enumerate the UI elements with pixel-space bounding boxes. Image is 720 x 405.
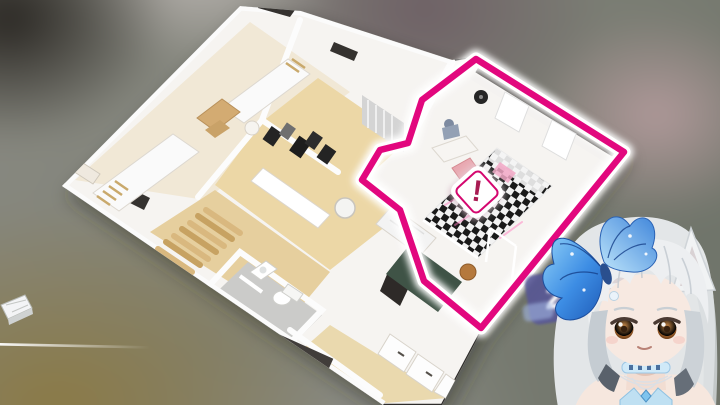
video-frame: 2 ! — [0, 0, 720, 405]
robot-vacuum — [335, 198, 355, 218]
light-streak — [0, 343, 150, 349]
pearl — [610, 292, 619, 301]
mini-floorplan-icon — [1, 295, 33, 325]
vtuber-avatar — [528, 162, 720, 405]
exclamation-glyph: ! — [453, 168, 500, 215]
basket — [460, 264, 476, 280]
